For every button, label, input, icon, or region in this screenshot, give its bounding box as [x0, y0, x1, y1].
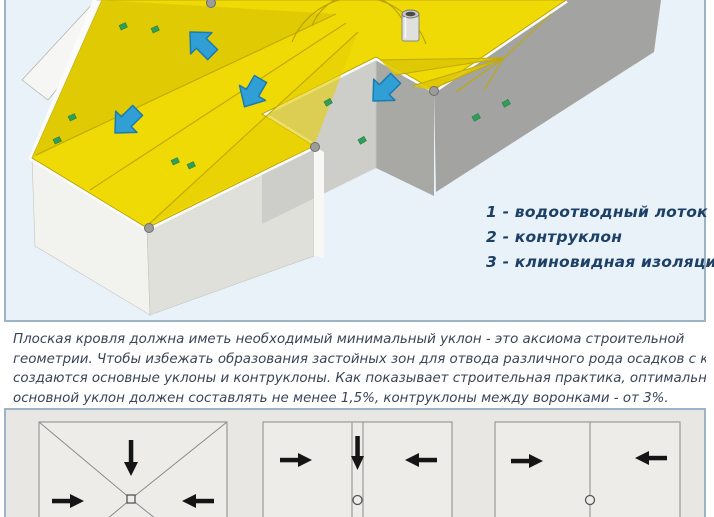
paragraph-line: Плоская кровля должна иметь необходимый …	[13, 330, 706, 350]
drain-point	[586, 496, 595, 505]
scheme-four-slopes	[39, 422, 227, 517]
paragraph-line: геометрии. Чтобы избежать образования за…	[13, 350, 706, 370]
paragraph-line: создаются основные уклоны и контруклоны.…	[13, 369, 706, 389]
paragraph-line: основной уклон должен составлять не мене…	[13, 389, 706, 409]
scheme-middle-channel	[263, 422, 452, 517]
scheme-center-valley	[495, 422, 680, 517]
vent-pipe-icon	[402, 10, 419, 41]
drain-point	[353, 496, 362, 505]
description-paragraph: Плоская кровля должна иметь необходимый …	[0, 326, 714, 408]
slope-schemes	[6, 410, 704, 517]
legend-item-2: 2 - контруклон	[486, 225, 714, 250]
roof-legend: 1 - водоотводный лоток 2 - контруклон 3 …	[486, 200, 714, 275]
article-figure: 1 - водоотводный лоток 2 - контруклон 3 …	[0, 0, 714, 517]
slope-schemes-panel	[4, 408, 706, 517]
legend-item-3: 3 - клиновидная изоляция	[486, 250, 714, 275]
roof-illustration-panel: 1 - водоотводный лоток 2 - контруклон 3 …	[4, 0, 706, 322]
drain-point	[127, 495, 135, 503]
legend-item-1: 1 - водоотводный лоток	[486, 200, 714, 225]
